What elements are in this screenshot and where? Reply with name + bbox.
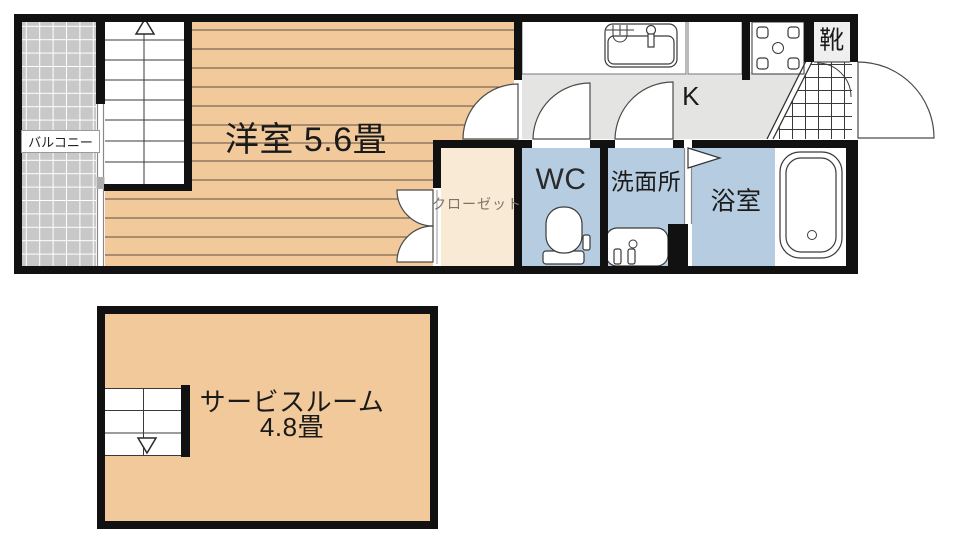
stairs-up <box>104 19 184 184</box>
closet-label: クローゼット <box>432 197 522 211</box>
kitchen-counter-side <box>688 20 742 74</box>
kitchen-sink-icon <box>605 24 677 67</box>
balcony-window <box>96 104 105 266</box>
western-room-label: 洋室 5.6畳 <box>225 123 387 157</box>
kitchen-label: K <box>682 83 700 109</box>
bathroom-label: 浴室 <box>710 190 761 215</box>
stove-icon <box>752 22 804 74</box>
floorplan-drawing <box>0 0 960 537</box>
washroom-label: 洗面所 <box>611 171 682 194</box>
floor1-plan <box>14 14 934 274</box>
shoe-cabinet-label: 靴 <box>819 29 845 54</box>
service-room-size-label: 4.8畳 <box>260 414 324 440</box>
washbasin-icon <box>606 228 668 266</box>
floorplan-canvas: 洋室 5.6畳 バルコニー クローゼット WC 洗面所 浴室 K 靴 サービスル… <box>0 0 960 537</box>
entrance-door-arc-icon <box>858 62 934 138</box>
balcony-label: バルコニー <box>21 130 100 153</box>
bathroom-wall-stub <box>668 224 688 266</box>
window-handle <box>97 177 105 189</box>
bathtub-icon <box>780 152 842 258</box>
wc-label: WC <box>536 165 587 195</box>
stairs-down <box>105 385 190 457</box>
